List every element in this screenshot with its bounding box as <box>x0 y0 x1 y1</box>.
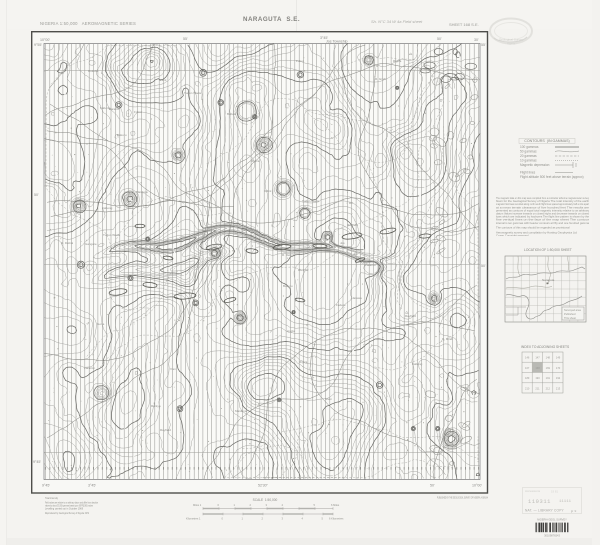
svg-text:50': 50' <box>430 484 435 488</box>
svg-text:30': 30' <box>474 38 479 42</box>
svg-text:Fobur: Fobur <box>296 59 304 63</box>
svg-text:Jos Township: Jos Township <box>326 40 348 44</box>
svg-text:Gangare: Gangare <box>85 242 97 246</box>
svg-text:R. Delimi: R. Delimi <box>61 241 74 245</box>
svg-text:Rigiza: Rigiza <box>393 59 402 63</box>
svg-text:50 gammas: 50 gammas <box>520 150 537 154</box>
svg-text:Bukuru: Bukuru <box>117 133 127 137</box>
svg-text:NIGERIA GEOL SURVEY: NIGERIA GEOL SURVEY <box>537 518 567 522</box>
svg-text:Magnetic depression: Magnetic depression <box>520 163 550 167</box>
svg-text:Rayfield: Rayfield <box>405 314 416 318</box>
svg-text:3: 3 <box>266 503 268 507</box>
svg-text:Kabong: Kabong <box>412 362 423 366</box>
svg-text:Bukuru: Bukuru <box>283 284 293 288</box>
svg-text:NAT. — LIBRARY COPY: NAT. — LIBRARY COPY <box>525 509 565 513</box>
svg-text:10°00': 10°00' <box>472 484 482 488</box>
svg-text:10 gammas: 10 gammas <box>520 159 537 163</box>
svg-text:52'30": 52'30" <box>258 484 269 488</box>
svg-text:2: 2 <box>262 517 264 521</box>
svg-text:170: 170 <box>556 366 561 370</box>
svg-text:Babale: Babale <box>227 112 237 116</box>
svg-text:9°45': 9°45' <box>42 484 50 488</box>
svg-text:SCALE 1:50,000: SCALE 1:50,000 <box>253 498 278 502</box>
svg-text:168: 168 <box>535 366 540 370</box>
svg-text:148: 148 <box>546 356 551 360</box>
svg-text:Surveyed area: Surveyed area <box>564 308 581 312</box>
svg-text:Jos: Jos <box>340 241 345 245</box>
svg-text:5: 5 <box>322 517 324 521</box>
svg-text:19 81: 19 81 <box>551 490 558 494</box>
svg-text:CONTOURS (IN GAMMAS): CONTOURS (IN GAMMAS) <box>524 139 569 143</box>
svg-text:4: 4 <box>282 503 284 507</box>
svg-text:Zarazon: Zarazon <box>84 366 95 370</box>
svg-text:Rayfield: Rayfield <box>347 223 358 227</box>
svg-text:Tudun Wada: Tudun Wada <box>184 91 201 95</box>
svg-text:Jos: Jos <box>353 252 358 256</box>
svg-text:55': 55' <box>183 37 188 41</box>
svg-text:Rigiza: Rigiza <box>251 159 260 163</box>
svg-text:Rukuba: Rukuba <box>88 69 99 73</box>
svg-text:Dilimi: Dilimi <box>159 78 167 82</box>
svg-text:R. Delimi: R. Delimi <box>282 253 295 257</box>
svg-text:Accessions: Accessions <box>525 489 541 493</box>
svg-text:50': 50' <box>34 193 39 197</box>
svg-text:Rayfield: Rayfield <box>160 428 171 432</box>
svg-text:Tudun Wada: Tudun Wada <box>302 199 319 203</box>
svg-text:6 Miles: 6 Miles <box>331 503 340 507</box>
svg-text:147: 147 <box>535 356 540 360</box>
svg-text:The contours of this map shoul: The contours of this map should be regar… <box>496 225 570 229</box>
svg-text:Tudun Wada: Tudun Wada <box>103 233 120 237</box>
svg-text:Reproduced by Geological Surve: Reproduced by Geological Survey of Niger… <box>45 511 89 515</box>
svg-text:Fobur: Fobur <box>134 110 142 114</box>
svg-text:Anglo: Anglo <box>287 329 295 333</box>
svg-text:1: 1 <box>234 503 236 507</box>
svg-text:146: 146 <box>525 356 530 360</box>
svg-text:190: 190 <box>535 376 540 380</box>
svg-text:Kabong: Kabong <box>102 206 113 210</box>
svg-text:Total intensity: Total intensity <box>45 496 59 500</box>
svg-text:11111: 11111 <box>559 500 572 504</box>
svg-text:20 gammas: 20 gammas <box>520 154 537 158</box>
svg-text:6 Kilometres: 6 Kilometres <box>329 517 344 521</box>
svg-text:R. Gindi: R. Gindi <box>375 77 386 81</box>
svg-text:5: 5 <box>314 503 316 507</box>
svg-text:2: 2 <box>250 503 252 507</box>
svg-text:211: 211 <box>535 387 540 391</box>
svg-text:Federe: Federe <box>336 303 346 307</box>
svg-text:Flight lines: Flight lines <box>520 171 536 175</box>
svg-text:189: 189 <box>525 376 530 380</box>
svg-text:Kilometres 1: Kilometres 1 <box>186 517 201 521</box>
svg-text:µ s: µ s <box>571 508 576 513</box>
svg-text:Gyel: Gyel <box>234 230 241 234</box>
svg-text:R. Gindi: R. Gindi <box>442 337 453 341</box>
svg-text:Gona: Gona <box>97 322 105 326</box>
svg-text:167: 167 <box>525 366 530 370</box>
svg-text:10°00': 10°00' <box>40 38 50 42</box>
svg-text:Du: Du <box>349 201 353 205</box>
svg-text:4: 4 <box>302 517 304 521</box>
svg-text:50': 50' <box>437 37 442 41</box>
svg-text:Rigiza: Rigiza <box>299 360 308 364</box>
svg-text:149: 149 <box>556 356 561 360</box>
svg-text:This sheet: This sheet <box>564 316 576 320</box>
svg-text:Maiduna: Maiduna <box>136 190 148 194</box>
svg-text:Levelling carried out in Octob: Levelling carried out in October 1969 <box>45 507 83 511</box>
svg-text:interval is ten gammas with he: interval is ten gammas with heavier cont… <box>496 221 589 225</box>
svg-text:Rantya: Rantya <box>298 268 308 272</box>
svg-text:100 gammas: 100 gammas <box>520 145 539 149</box>
svg-text:Flight altitude 500 feet above: Flight altitude 500 feet above terrain (… <box>520 175 584 179</box>
svg-text:210: 210 <box>525 387 530 391</box>
svg-text:110311: 110311 <box>528 499 551 505</box>
svg-text:PUBLISHED BY THE GEOLOGICAL SU: PUBLISHED BY THE GEOLOGICAL SURVEY OF NI… <box>437 496 488 500</box>
svg-text:55': 55' <box>481 43 486 47</box>
svg-text:9°55': 9°55' <box>34 43 42 47</box>
svg-text:Published: Published <box>564 312 576 316</box>
svg-text:1: 1 <box>242 517 244 521</box>
svg-text:Maiduna: Maiduna <box>235 409 247 413</box>
svg-text:Miles 1: Miles 1 <box>193 503 202 507</box>
svg-text:Naraguta: Naraguta <box>542 278 555 282</box>
svg-text:Zarazon: Zarazon <box>109 107 120 111</box>
svg-text:9°45': 9°45' <box>33 460 41 464</box>
svg-text:3°45': 3°45' <box>88 484 96 488</box>
svg-text:Jarawa: Jarawa <box>352 296 362 300</box>
svg-text:213: 213 <box>556 387 561 391</box>
svg-text:Rantya: Rantya <box>151 404 161 408</box>
svg-text:Shen: Shen <box>325 397 332 401</box>
svg-text:3: 3 <box>282 517 284 521</box>
svg-text:191: 191 <box>546 376 551 380</box>
svg-text:Tudun Wada: Tudun Wada <box>241 228 258 232</box>
svg-text:Vom: Vom <box>170 367 177 371</box>
svg-text:50': 50' <box>481 264 486 268</box>
svg-text:192: 192 <box>556 376 561 380</box>
svg-text:169: 169 <box>546 366 551 370</box>
svg-text:30109876543: 30109876543 <box>544 533 560 537</box>
svg-text:212: 212 <box>546 387 551 391</box>
svg-text:0: 0 <box>218 503 220 507</box>
svg-text:0: 0 <box>222 517 224 521</box>
svg-text:Dilimi: Dilimi <box>264 189 272 193</box>
svg-text:Crown Copyright reserved: Crown Copyright reserved <box>496 234 529 237</box>
svg-text:Zarazon: Zarazon <box>365 263 376 267</box>
